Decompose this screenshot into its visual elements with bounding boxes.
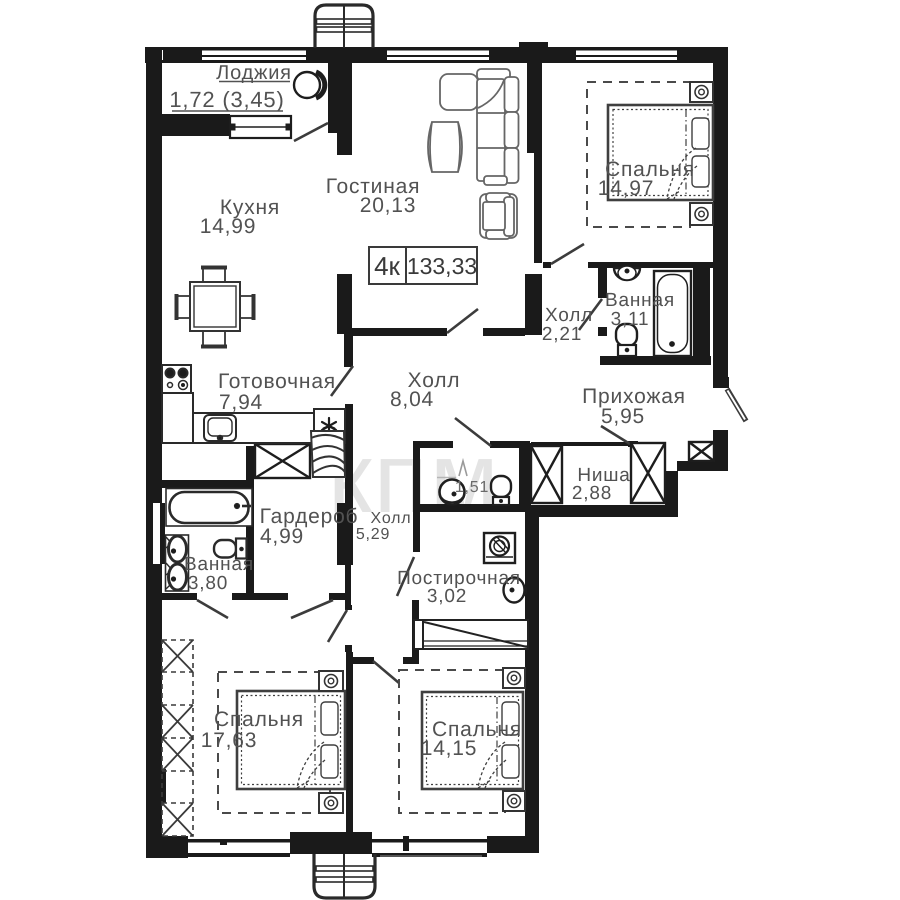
svg-text:133,33: 133,33 bbox=[407, 253, 477, 279]
svg-text:20,13: 20,13 bbox=[360, 194, 417, 217]
svg-text:Ванная: Ванная bbox=[605, 290, 675, 311]
svg-text:7,94: 7,94 bbox=[219, 391, 263, 414]
svg-text:Ванная: Ванная bbox=[184, 554, 254, 575]
svg-text:Лоджия: Лоджия bbox=[216, 62, 292, 84]
svg-text:5,95: 5,95 bbox=[601, 405, 645, 428]
svg-text:2,21: 2,21 bbox=[542, 324, 582, 345]
svg-text:5,29: 5,29 bbox=[356, 526, 390, 543]
svg-text:14,99: 14,99 bbox=[200, 215, 257, 238]
svg-text:4к: 4к bbox=[374, 251, 400, 281]
svg-text:3,11: 3,11 bbox=[611, 309, 650, 330]
svg-text:3,80: 3,80 bbox=[188, 573, 228, 594]
svg-text:14,97: 14,97 bbox=[598, 177, 655, 200]
svg-text:14,15: 14,15 bbox=[421, 737, 478, 760]
svg-text:1,51: 1,51 bbox=[455, 479, 489, 496]
svg-text:1,72 (3,45): 1,72 (3,45) bbox=[169, 87, 284, 112]
svg-text:8,04: 8,04 bbox=[390, 388, 434, 411]
svg-text:Холл: Холл bbox=[371, 510, 412, 527]
svg-text:Холл: Холл bbox=[545, 305, 593, 326]
svg-text:3,02: 3,02 bbox=[427, 586, 467, 607]
svg-text:4,99: 4,99 bbox=[260, 525, 304, 548]
svg-text:Спальня: Спальня bbox=[214, 708, 304, 731]
svg-text:Готовочная: Готовочная bbox=[218, 370, 336, 393]
svg-text:17,63: 17,63 bbox=[201, 729, 258, 752]
svg-text:2,88: 2,88 bbox=[572, 483, 612, 504]
